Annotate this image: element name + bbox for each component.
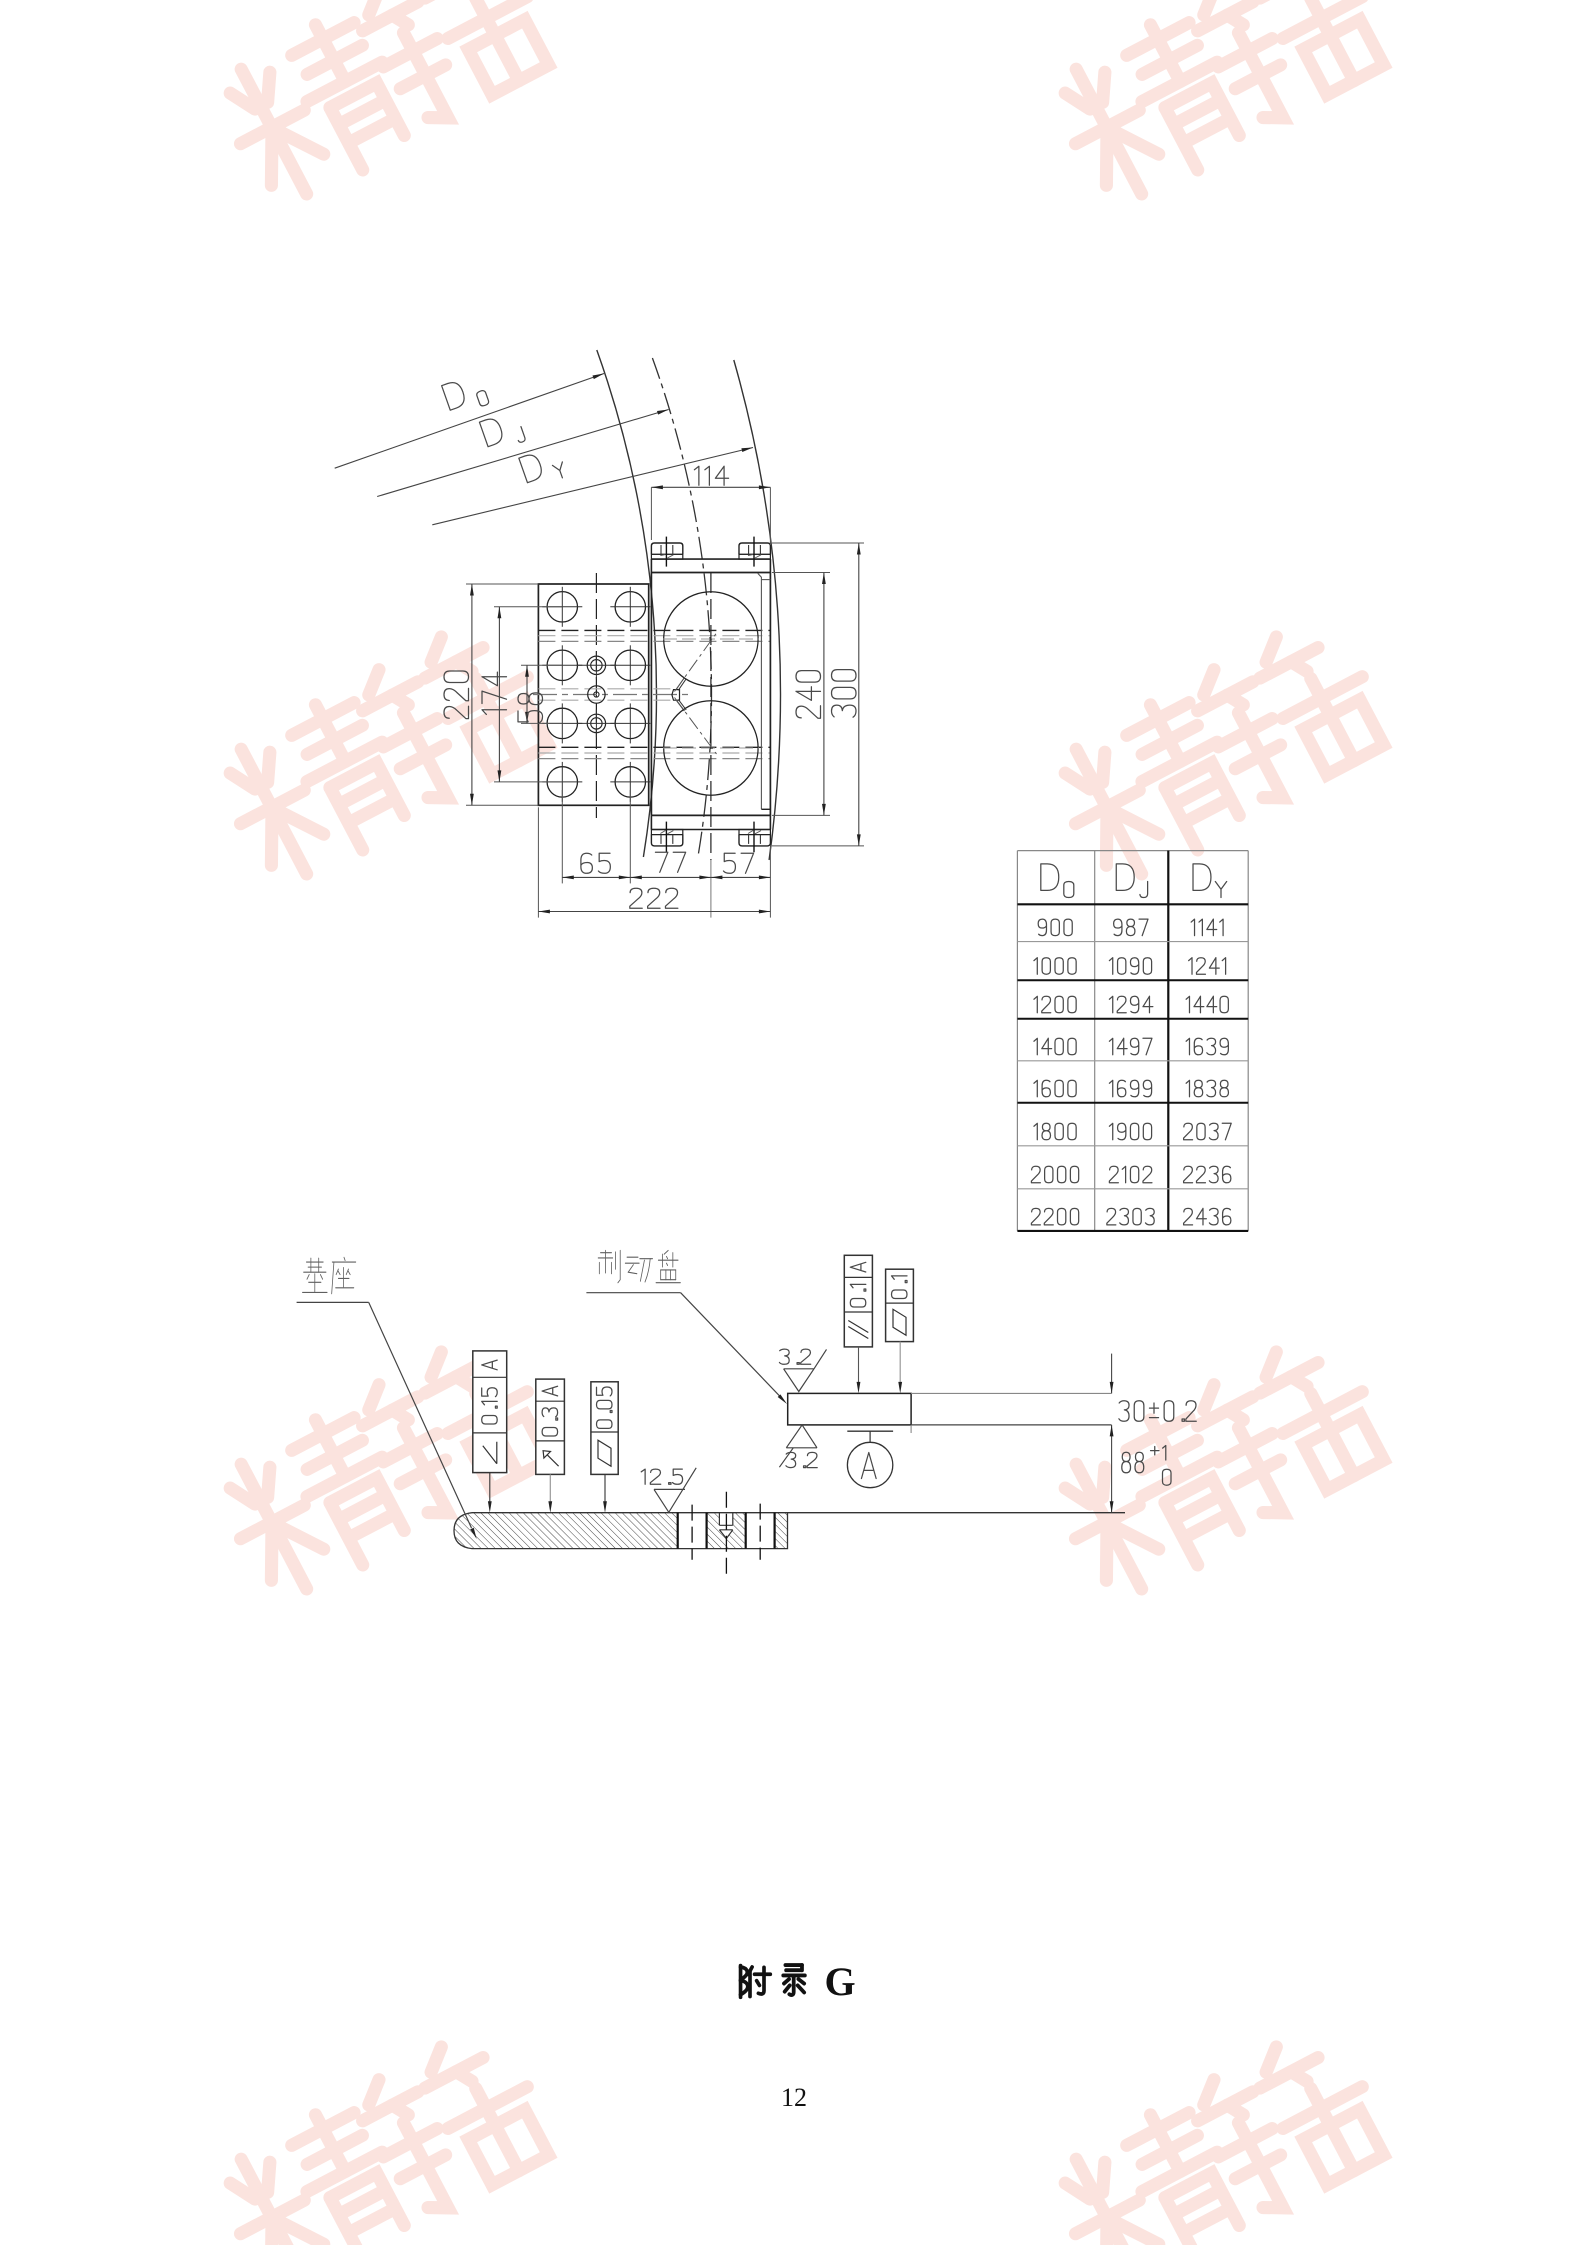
svg-text:12: 12 xyxy=(781,2083,807,2112)
svg-text:G: G xyxy=(824,1959,855,2004)
